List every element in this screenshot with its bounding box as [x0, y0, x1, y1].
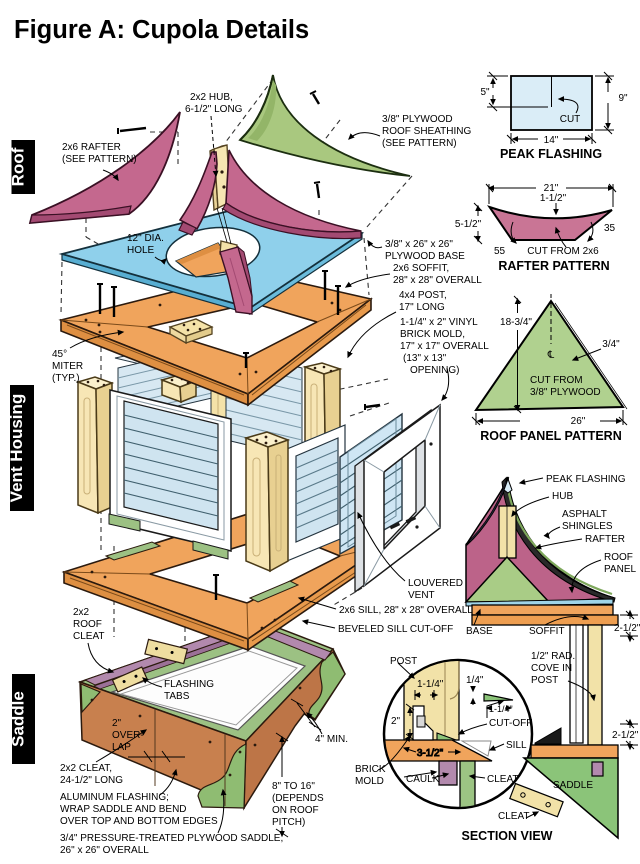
svg-text:6-1/2" LONG: 6-1/2" LONG [185, 104, 243, 115]
svg-text:2-1/2": 2-1/2" [614, 623, 640, 634]
svg-text:45°: 45° [52, 349, 67, 360]
svg-text:PITCH): PITCH) [272, 817, 305, 828]
svg-text:CUT: CUT [560, 114, 581, 125]
svg-text:ALUMINUM FLASHING;: ALUMINUM FLASHING; [60, 792, 169, 803]
svg-text:17" x 17" OVERALL: 17" x 17" OVERALL [400, 341, 489, 352]
svg-text:Roof: Roof [9, 147, 28, 186]
svg-text:(13" x 13": (13" x 13" [403, 353, 447, 364]
svg-text:TABS: TABS [164, 691, 190, 702]
svg-text:24-1/2" LONG: 24-1/2" LONG [60, 775, 123, 786]
svg-text:MITER: MITER [52, 361, 83, 372]
svg-text:1-1/2": 1-1/2" [540, 193, 567, 204]
svg-text:2x6 SOFFIT,: 2x6 SOFFIT, [393, 263, 449, 274]
svg-text:POST: POST [390, 656, 417, 667]
svg-text:COVE IN: COVE IN [531, 663, 572, 674]
svg-text:WRAP SADDLE AND BEND: WRAP SADDLE AND BEND [60, 804, 187, 815]
svg-text:2": 2" [112, 718, 122, 729]
svg-text:OVER TOP AND BOTTOM EDGES: OVER TOP AND BOTTOM EDGES [60, 816, 218, 827]
svg-text:HOLE: HOLE [127, 245, 155, 256]
svg-text:4x4 POST,: 4x4 POST, [399, 290, 447, 301]
svg-text:RAFTER: RAFTER [585, 534, 625, 545]
svg-text:CAULK: CAULK [406, 774, 440, 785]
svg-text:3/4" PRESSURE-TREATED PLYWOOD: 3/4" PRESSURE-TREATED PLYWOOD SADDLE, [60, 833, 283, 844]
svg-text:26" x 26" OVERALL: 26" x 26" OVERALL [60, 845, 149, 856]
svg-text:3/4": 3/4" [602, 339, 620, 350]
svg-text:PANEL: PANEL [604, 564, 636, 575]
svg-text:1-1/4": 1-1/4" [489, 704, 513, 714]
svg-text:4" MIN.: 4" MIN. [315, 734, 348, 745]
svg-text:2x2: 2x2 [73, 607, 90, 618]
svg-text:LOUVERED: LOUVERED [408, 578, 463, 589]
svg-text:9": 9" [618, 93, 628, 104]
svg-text:OVER-: OVER- [112, 730, 144, 741]
svg-text:ON ROOF: ON ROOF [272, 805, 319, 816]
svg-text:FLASHING: FLASHING [164, 679, 214, 690]
svg-text:2x2 HUB,: 2x2 HUB, [190, 92, 233, 103]
svg-text:5-1/2": 5-1/2" [455, 219, 482, 230]
svg-text:1-1/4": 1-1/4" [417, 679, 444, 690]
svg-text:17" LONG: 17" LONG [399, 302, 445, 313]
svg-text:BRICK MOLD,: BRICK MOLD, [400, 329, 465, 340]
svg-text:2x6 SILL, 28" x 28" OVERALL: 2x6 SILL, 28" x 28" OVERALL [339, 605, 473, 616]
svg-text:LAP: LAP [112, 742, 131, 753]
svg-text:5": 5" [480, 87, 490, 98]
svg-text:BEVELED SILL CUT-OFF: BEVELED SILL CUT-OFF [338, 624, 453, 635]
svg-text:PEAK FLASHING: PEAK FLASHING [500, 147, 602, 161]
svg-text:CLEAT: CLEAT [487, 774, 519, 785]
svg-text:℄: ℄ [547, 350, 555, 361]
svg-text:1/4": 1/4" [466, 675, 484, 686]
svg-text:BASE: BASE [466, 626, 493, 637]
svg-text:3/8" PLYWOOD: 3/8" PLYWOOD [382, 114, 453, 125]
svg-text:SOFFIT: SOFFIT [529, 626, 565, 637]
svg-text:Vent Housing: Vent Housing [7, 394, 26, 503]
svg-text:2x6 RAFTER: 2x6 RAFTER [62, 142, 121, 153]
svg-text:(TYP.): (TYP.) [52, 373, 80, 384]
svg-text:CLEAT: CLEAT [73, 631, 105, 642]
svg-text:26": 26" [571, 416, 586, 427]
svg-text:(SEE PATTERN): (SEE PATTERN) [382, 138, 457, 149]
svg-text:SADDLE: SADDLE [553, 780, 593, 791]
svg-text:3-1/2": 3-1/2" [417, 748, 444, 759]
svg-text:SHINGLES: SHINGLES [562, 521, 613, 532]
svg-text:35: 35 [604, 223, 616, 234]
svg-text:(SEE PATTERN): (SEE PATTERN) [62, 154, 137, 165]
svg-text:SECTION VIEW: SECTION VIEW [462, 829, 553, 843]
svg-text:OPENING): OPENING) [410, 365, 459, 376]
svg-text:SILL: SILL [506, 740, 527, 751]
svg-text:2x2 CLEAT,: 2x2 CLEAT, [60, 763, 112, 774]
svg-text:2-1/2": 2-1/2" [612, 730, 639, 741]
svg-text:Figure A: Cupola Details: Figure A: Cupola Details [14, 16, 309, 44]
svg-text:ROOF PANEL PATTERN: ROOF PANEL PATTERN [480, 429, 621, 443]
svg-text:1-1/4" x 2" VINYL: 1-1/4" x 2" VINYL [400, 317, 478, 328]
svg-text:8" TO 16": 8" TO 16" [272, 781, 315, 792]
svg-text:ROOF: ROOF [604, 552, 633, 563]
svg-text:CLEAT: CLEAT [498, 811, 530, 822]
svg-text:12" DIA.: 12" DIA. [127, 233, 164, 244]
svg-text:18-3/4": 18-3/4" [500, 317, 532, 328]
svg-text:ROOF SHEATHING: ROOF SHEATHING [382, 126, 471, 137]
svg-text:MOLD: MOLD [355, 776, 384, 787]
svg-text:2": 2" [391, 716, 401, 727]
svg-text:28" x 28" OVERALL: 28" x 28" OVERALL [393, 275, 482, 286]
svg-text:14": 14" [544, 135, 559, 146]
svg-text:POST: POST [531, 675, 558, 686]
svg-text:BRICK: BRICK [355, 764, 386, 775]
svg-text:CUT FROM 2x6: CUT FROM 2x6 [527, 246, 599, 257]
svg-text:3/8" x 26" x 26": 3/8" x 26" x 26" [385, 239, 453, 250]
svg-text:3/8" PLYWOOD: 3/8" PLYWOOD [530, 387, 601, 398]
svg-text:ROOF: ROOF [73, 619, 102, 630]
svg-text:ASPHALT: ASPHALT [562, 509, 607, 520]
svg-text:1/2" RAD.: 1/2" RAD. [531, 651, 575, 662]
svg-text:Saddle: Saddle [9, 691, 28, 747]
svg-text:CUT-OFF: CUT-OFF [489, 718, 532, 729]
svg-text:HUB: HUB [552, 491, 573, 502]
svg-text:VENT: VENT [408, 590, 435, 601]
svg-text:55: 55 [494, 246, 506, 257]
svg-text:PLYWOOD BASE: PLYWOOD BASE [385, 251, 465, 262]
svg-text:CUT FROM: CUT FROM [530, 375, 583, 386]
svg-text:(DEPENDS: (DEPENDS [272, 793, 324, 804]
svg-text:RAFTER PATTERN: RAFTER PATTERN [498, 259, 609, 273]
svg-text:PEAK FLASHING: PEAK FLASHING [546, 474, 626, 485]
